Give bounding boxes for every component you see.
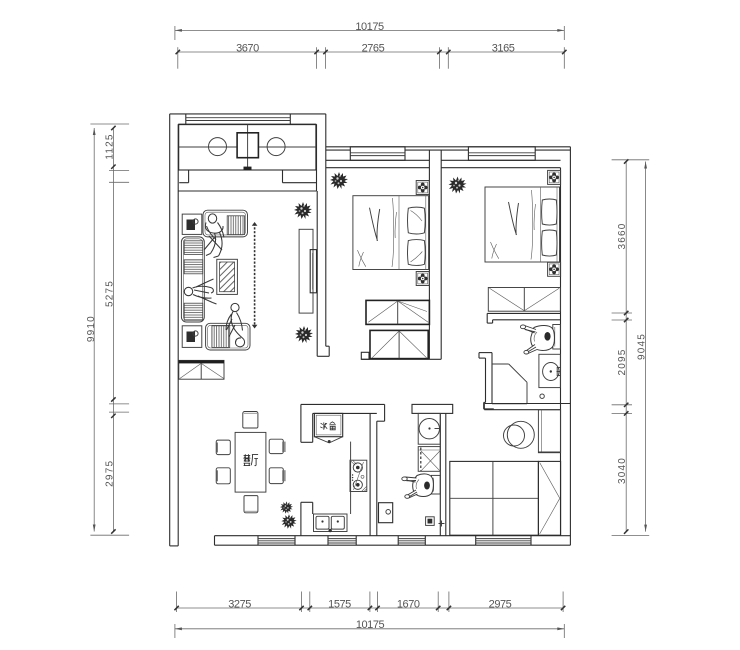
svg-text:10175: 10175 [355, 21, 384, 33]
svg-text:3660: 3660 [617, 222, 628, 249]
svg-text:9045: 9045 [637, 333, 648, 360]
svg-text:1670: 1670 [397, 598, 420, 610]
svg-text:9910: 9910 [86, 315, 97, 342]
svg-text:1125: 1125 [104, 133, 115, 159]
svg-text:5275: 5275 [104, 280, 115, 307]
svg-text:3275: 3275 [228, 598, 251, 610]
svg-text:10175: 10175 [356, 619, 385, 631]
svg-text:1575: 1575 [328, 598, 351, 610]
svg-text:2765: 2765 [362, 43, 385, 55]
svg-text:3165: 3165 [492, 43, 515, 55]
svg-text:3670: 3670 [236, 43, 259, 55]
svg-text:2975: 2975 [489, 598, 512, 610]
svg-text:3040: 3040 [617, 457, 628, 484]
svg-text:2095: 2095 [617, 348, 628, 375]
svg-text:2975: 2975 [104, 460, 115, 487]
